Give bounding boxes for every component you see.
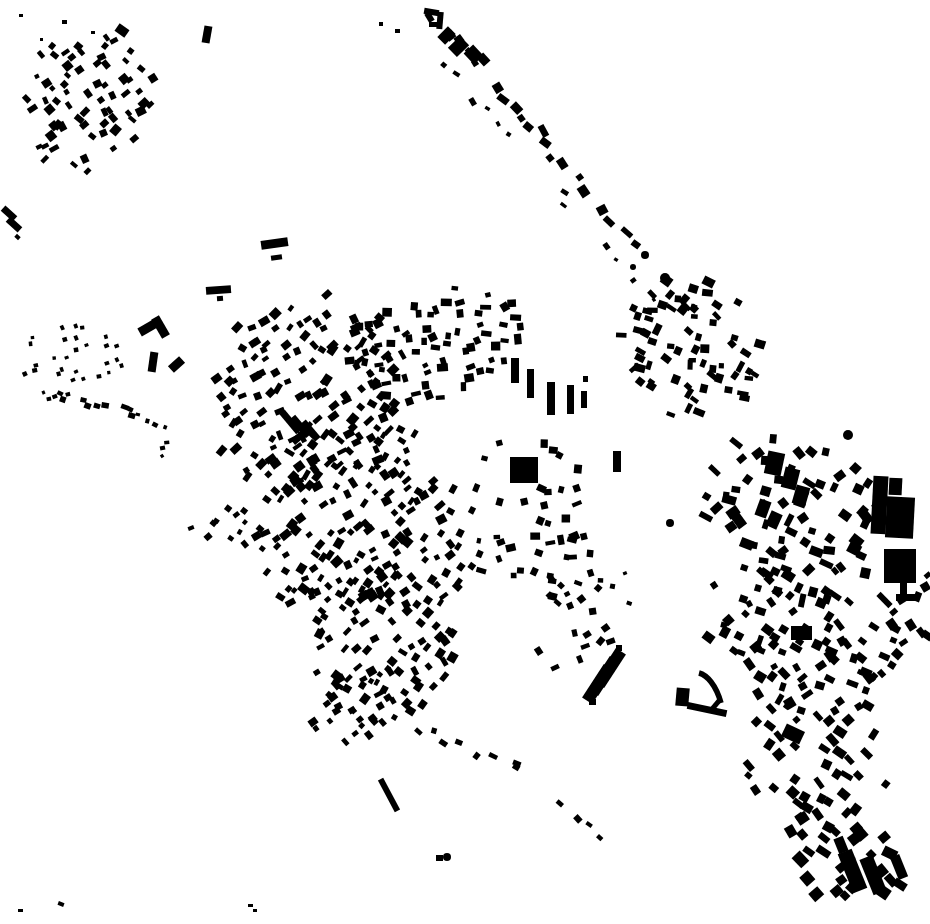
building <box>296 320 304 329</box>
map-canvas <box>0 0 930 924</box>
building <box>337 527 346 535</box>
building <box>414 727 423 735</box>
building <box>436 395 445 400</box>
building <box>753 670 767 684</box>
building <box>445 539 455 550</box>
building <box>766 597 776 608</box>
building <box>505 543 516 552</box>
building <box>792 716 800 724</box>
building <box>29 341 33 346</box>
building <box>571 629 578 637</box>
building <box>456 562 466 572</box>
building <box>327 529 335 537</box>
building <box>517 567 524 574</box>
building <box>798 593 807 608</box>
building <box>237 529 243 536</box>
building <box>286 323 294 331</box>
building <box>344 356 354 364</box>
building <box>74 65 85 75</box>
building <box>635 376 646 387</box>
building <box>754 584 762 592</box>
building <box>585 821 593 828</box>
building <box>261 237 289 250</box>
building <box>889 636 897 644</box>
building <box>545 153 554 163</box>
building <box>788 607 798 617</box>
building <box>434 500 446 511</box>
building <box>797 512 809 524</box>
building <box>343 344 352 353</box>
building <box>387 617 396 626</box>
building <box>399 586 410 597</box>
building <box>687 360 692 370</box>
building <box>744 376 753 381</box>
building <box>324 582 333 591</box>
building <box>371 488 378 495</box>
building <box>242 519 248 525</box>
building <box>317 574 324 582</box>
building <box>379 22 383 26</box>
building <box>70 378 76 383</box>
building <box>311 549 321 558</box>
building <box>42 96 49 104</box>
building <box>821 447 829 456</box>
building <box>567 385 574 414</box>
building <box>52 394 58 400</box>
building <box>699 384 708 394</box>
building <box>135 87 143 95</box>
building <box>744 771 753 780</box>
building <box>400 688 409 697</box>
building <box>97 96 106 104</box>
building <box>819 558 834 569</box>
building <box>646 381 657 392</box>
building <box>754 498 771 518</box>
building <box>560 188 569 196</box>
building <box>423 642 432 651</box>
building <box>811 639 824 652</box>
building <box>247 324 256 332</box>
building <box>797 673 808 683</box>
building <box>415 618 425 628</box>
building <box>83 167 91 175</box>
building <box>353 663 363 672</box>
building <box>687 702 728 717</box>
building <box>444 549 456 560</box>
building <box>452 70 460 77</box>
building <box>630 277 637 284</box>
building <box>547 382 555 415</box>
building <box>466 343 475 353</box>
building <box>285 585 293 593</box>
building <box>701 276 715 289</box>
building <box>481 455 488 461</box>
building <box>831 768 843 780</box>
building <box>730 371 739 381</box>
building <box>562 514 571 522</box>
building <box>700 344 709 353</box>
building <box>73 347 78 352</box>
building <box>270 367 281 377</box>
building <box>275 592 286 602</box>
building <box>739 394 750 402</box>
building <box>844 754 855 765</box>
building <box>304 390 313 400</box>
building <box>282 551 290 559</box>
building <box>606 637 616 645</box>
round-building <box>630 264 636 270</box>
building <box>814 681 825 691</box>
building <box>416 310 422 318</box>
building <box>711 299 723 310</box>
building <box>342 683 353 693</box>
building <box>41 390 45 394</box>
building <box>594 648 626 688</box>
building <box>754 606 766 616</box>
building <box>468 506 476 515</box>
building <box>802 563 816 577</box>
building <box>829 482 838 493</box>
building <box>429 22 437 27</box>
building <box>811 807 824 821</box>
building <box>506 131 512 137</box>
building <box>373 679 380 687</box>
building <box>778 624 789 635</box>
building <box>575 173 584 182</box>
building <box>824 623 834 633</box>
building <box>104 343 110 348</box>
building <box>702 289 713 297</box>
building <box>319 500 329 509</box>
building <box>261 355 269 362</box>
building <box>383 425 394 436</box>
building <box>18 909 23 912</box>
building <box>43 103 55 115</box>
building <box>647 337 657 346</box>
building <box>91 31 95 34</box>
building <box>309 340 319 350</box>
building <box>626 601 632 606</box>
building <box>84 343 89 347</box>
building <box>356 550 366 559</box>
building <box>240 507 248 515</box>
building <box>877 830 891 844</box>
building <box>751 716 762 727</box>
building <box>734 631 745 642</box>
building <box>781 723 805 744</box>
building <box>299 448 308 457</box>
building <box>364 321 373 328</box>
building <box>127 47 135 55</box>
building <box>398 349 407 360</box>
building <box>239 408 248 416</box>
building <box>374 342 382 348</box>
building <box>62 337 68 342</box>
round-building <box>443 853 451 861</box>
building <box>367 399 378 409</box>
building <box>359 693 371 706</box>
building <box>60 325 65 331</box>
building <box>408 643 416 651</box>
building <box>164 440 169 444</box>
building <box>778 648 787 656</box>
building <box>461 382 466 391</box>
building <box>147 73 158 84</box>
building <box>50 51 60 60</box>
building <box>433 554 440 561</box>
building <box>858 636 868 645</box>
building <box>381 529 391 539</box>
building <box>594 584 603 593</box>
building <box>80 325 85 329</box>
building <box>226 364 235 373</box>
building <box>878 652 890 662</box>
building <box>61 48 70 56</box>
building <box>838 508 852 522</box>
building <box>229 387 238 396</box>
building <box>499 321 508 328</box>
building <box>534 548 543 557</box>
building <box>373 424 381 432</box>
building <box>121 89 131 99</box>
building <box>920 581 930 593</box>
building <box>65 392 70 397</box>
building <box>740 348 752 359</box>
building <box>148 352 159 373</box>
building <box>357 384 366 393</box>
building <box>56 371 61 376</box>
round-building <box>666 519 674 527</box>
building <box>250 419 260 429</box>
building <box>550 664 560 672</box>
building <box>799 870 815 886</box>
building <box>329 497 337 505</box>
building <box>808 527 817 535</box>
building <box>393 325 400 332</box>
building <box>601 623 611 633</box>
building <box>49 85 56 92</box>
building <box>708 464 721 477</box>
building <box>430 344 440 350</box>
building <box>794 582 804 594</box>
building <box>742 474 753 486</box>
building <box>689 304 699 314</box>
building <box>889 607 898 616</box>
building <box>467 562 476 571</box>
building <box>326 717 333 724</box>
building <box>206 285 231 295</box>
building <box>119 363 124 368</box>
building <box>93 403 101 410</box>
building <box>402 475 412 485</box>
building <box>799 536 811 547</box>
building <box>784 824 798 839</box>
building <box>203 532 212 541</box>
building <box>350 616 358 625</box>
building <box>733 298 742 307</box>
building <box>248 904 253 907</box>
building <box>52 97 61 106</box>
building <box>217 296 223 301</box>
building <box>33 363 38 368</box>
building <box>448 484 458 495</box>
building <box>522 121 534 133</box>
building <box>210 373 222 385</box>
building <box>786 785 801 800</box>
building <box>484 106 490 112</box>
building <box>647 289 657 299</box>
building <box>301 575 309 582</box>
building <box>629 304 638 313</box>
building <box>309 564 319 573</box>
building <box>232 511 240 518</box>
building <box>778 536 785 544</box>
building <box>392 634 402 644</box>
building <box>736 453 747 464</box>
building <box>495 121 500 127</box>
building <box>691 314 698 319</box>
building <box>241 359 248 368</box>
building <box>598 578 604 583</box>
building <box>14 234 20 240</box>
building <box>427 332 438 343</box>
building <box>456 309 464 318</box>
building <box>876 592 892 608</box>
building <box>743 657 756 671</box>
building <box>566 602 574 610</box>
building <box>549 446 558 454</box>
building <box>616 332 627 337</box>
building <box>301 469 310 480</box>
building <box>884 549 916 583</box>
building <box>587 569 595 578</box>
building <box>530 567 539 577</box>
building <box>135 412 140 416</box>
building <box>382 560 393 570</box>
building <box>813 710 824 721</box>
building <box>238 392 247 399</box>
building <box>391 714 398 721</box>
building <box>376 701 385 710</box>
building <box>103 34 111 42</box>
building <box>476 567 487 575</box>
building <box>862 686 870 695</box>
building <box>361 348 369 356</box>
building <box>63 88 70 95</box>
building <box>750 784 761 796</box>
building <box>620 226 633 238</box>
building <box>455 528 464 538</box>
building <box>844 597 854 607</box>
building <box>695 333 703 342</box>
building <box>264 470 272 478</box>
building <box>421 556 429 564</box>
building <box>574 464 583 473</box>
building <box>491 342 500 351</box>
building <box>891 648 904 661</box>
building <box>253 909 257 912</box>
building <box>321 289 332 300</box>
building <box>411 390 422 397</box>
building <box>88 132 97 141</box>
building <box>64 355 69 359</box>
building <box>382 308 392 317</box>
building <box>52 356 56 360</box>
building <box>666 411 675 418</box>
building <box>101 59 111 69</box>
building <box>378 778 400 813</box>
building <box>282 353 291 362</box>
building <box>411 652 421 662</box>
building <box>410 666 419 676</box>
building <box>293 460 306 473</box>
building <box>488 357 495 364</box>
building <box>114 344 119 349</box>
building <box>70 161 78 169</box>
building <box>435 513 448 525</box>
building <box>250 353 258 361</box>
building <box>270 444 277 450</box>
building <box>395 29 400 33</box>
building <box>596 834 603 841</box>
building <box>441 299 452 307</box>
building <box>777 667 790 681</box>
building <box>644 315 654 322</box>
building <box>248 336 261 348</box>
building <box>517 114 526 123</box>
building <box>437 26 455 44</box>
building <box>633 311 642 321</box>
building <box>544 520 551 527</box>
building <box>259 545 266 552</box>
building <box>280 339 292 350</box>
building <box>163 425 168 430</box>
building <box>431 727 438 734</box>
building <box>114 357 119 362</box>
building <box>397 437 406 445</box>
building <box>580 532 588 540</box>
building <box>520 497 529 505</box>
building <box>427 312 434 318</box>
building <box>368 678 375 685</box>
building <box>623 571 628 575</box>
building <box>27 104 38 114</box>
building <box>861 699 875 712</box>
building <box>572 500 583 508</box>
building <box>699 359 707 368</box>
building <box>79 106 90 117</box>
building <box>589 699 596 705</box>
building <box>868 728 879 741</box>
building <box>324 596 332 604</box>
building <box>785 591 795 601</box>
building <box>468 97 477 107</box>
building <box>92 79 102 89</box>
building <box>262 495 272 504</box>
building <box>420 533 429 543</box>
building <box>576 655 584 664</box>
building <box>386 340 395 347</box>
building <box>466 363 476 371</box>
building <box>824 533 835 544</box>
building <box>766 670 778 682</box>
building <box>394 456 402 464</box>
building <box>616 645 622 651</box>
building <box>412 600 421 610</box>
building <box>37 50 45 59</box>
building <box>846 679 859 689</box>
building <box>860 747 873 760</box>
